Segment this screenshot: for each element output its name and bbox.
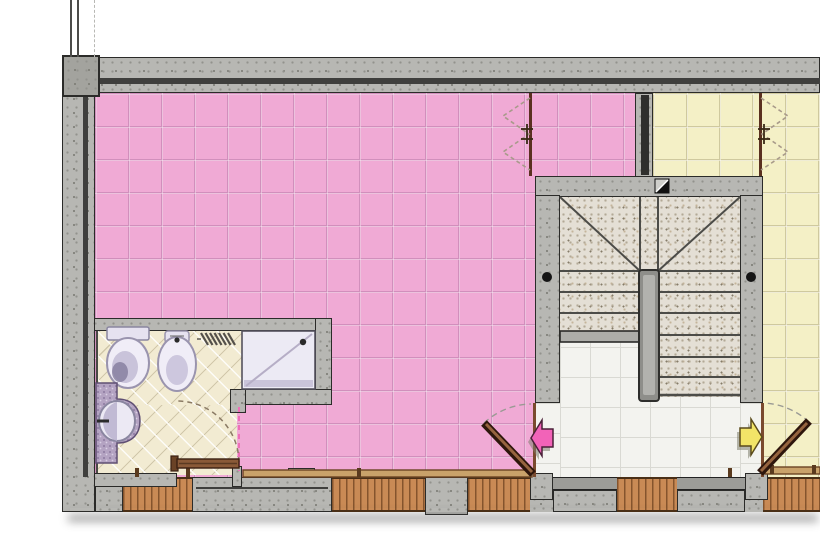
yellow-folding-door-pivot [758,124,770,144]
plan-linework [0,0,820,560]
shower-drain [300,339,306,345]
pink-folding-door-pivot [521,124,533,144]
shower-tray [242,331,315,389]
yellow-apartment-entry-door [760,403,809,473]
stair-spine-wall-core [643,275,655,395]
bidet [158,331,196,391]
section-cut-symbol [655,179,669,193]
yellow-entry-arrow [737,419,762,459]
washbasin-counter [96,383,140,463]
pink-entry-arrow [528,420,553,460]
stair-flight-edge-bar [560,331,640,342]
toilet [107,327,149,388]
bathroom-door [171,401,239,471]
pink-folding-door [503,98,530,170]
floor-plan-canvas [0,0,820,560]
radiator [197,333,235,345]
handrail-anchor-dot [542,272,552,282]
pink-window-frame [243,470,532,477]
yellow-folding-door [761,98,788,170]
handrail-anchor-dot [746,272,756,282]
pink-apartment-entry-door [484,404,533,474]
